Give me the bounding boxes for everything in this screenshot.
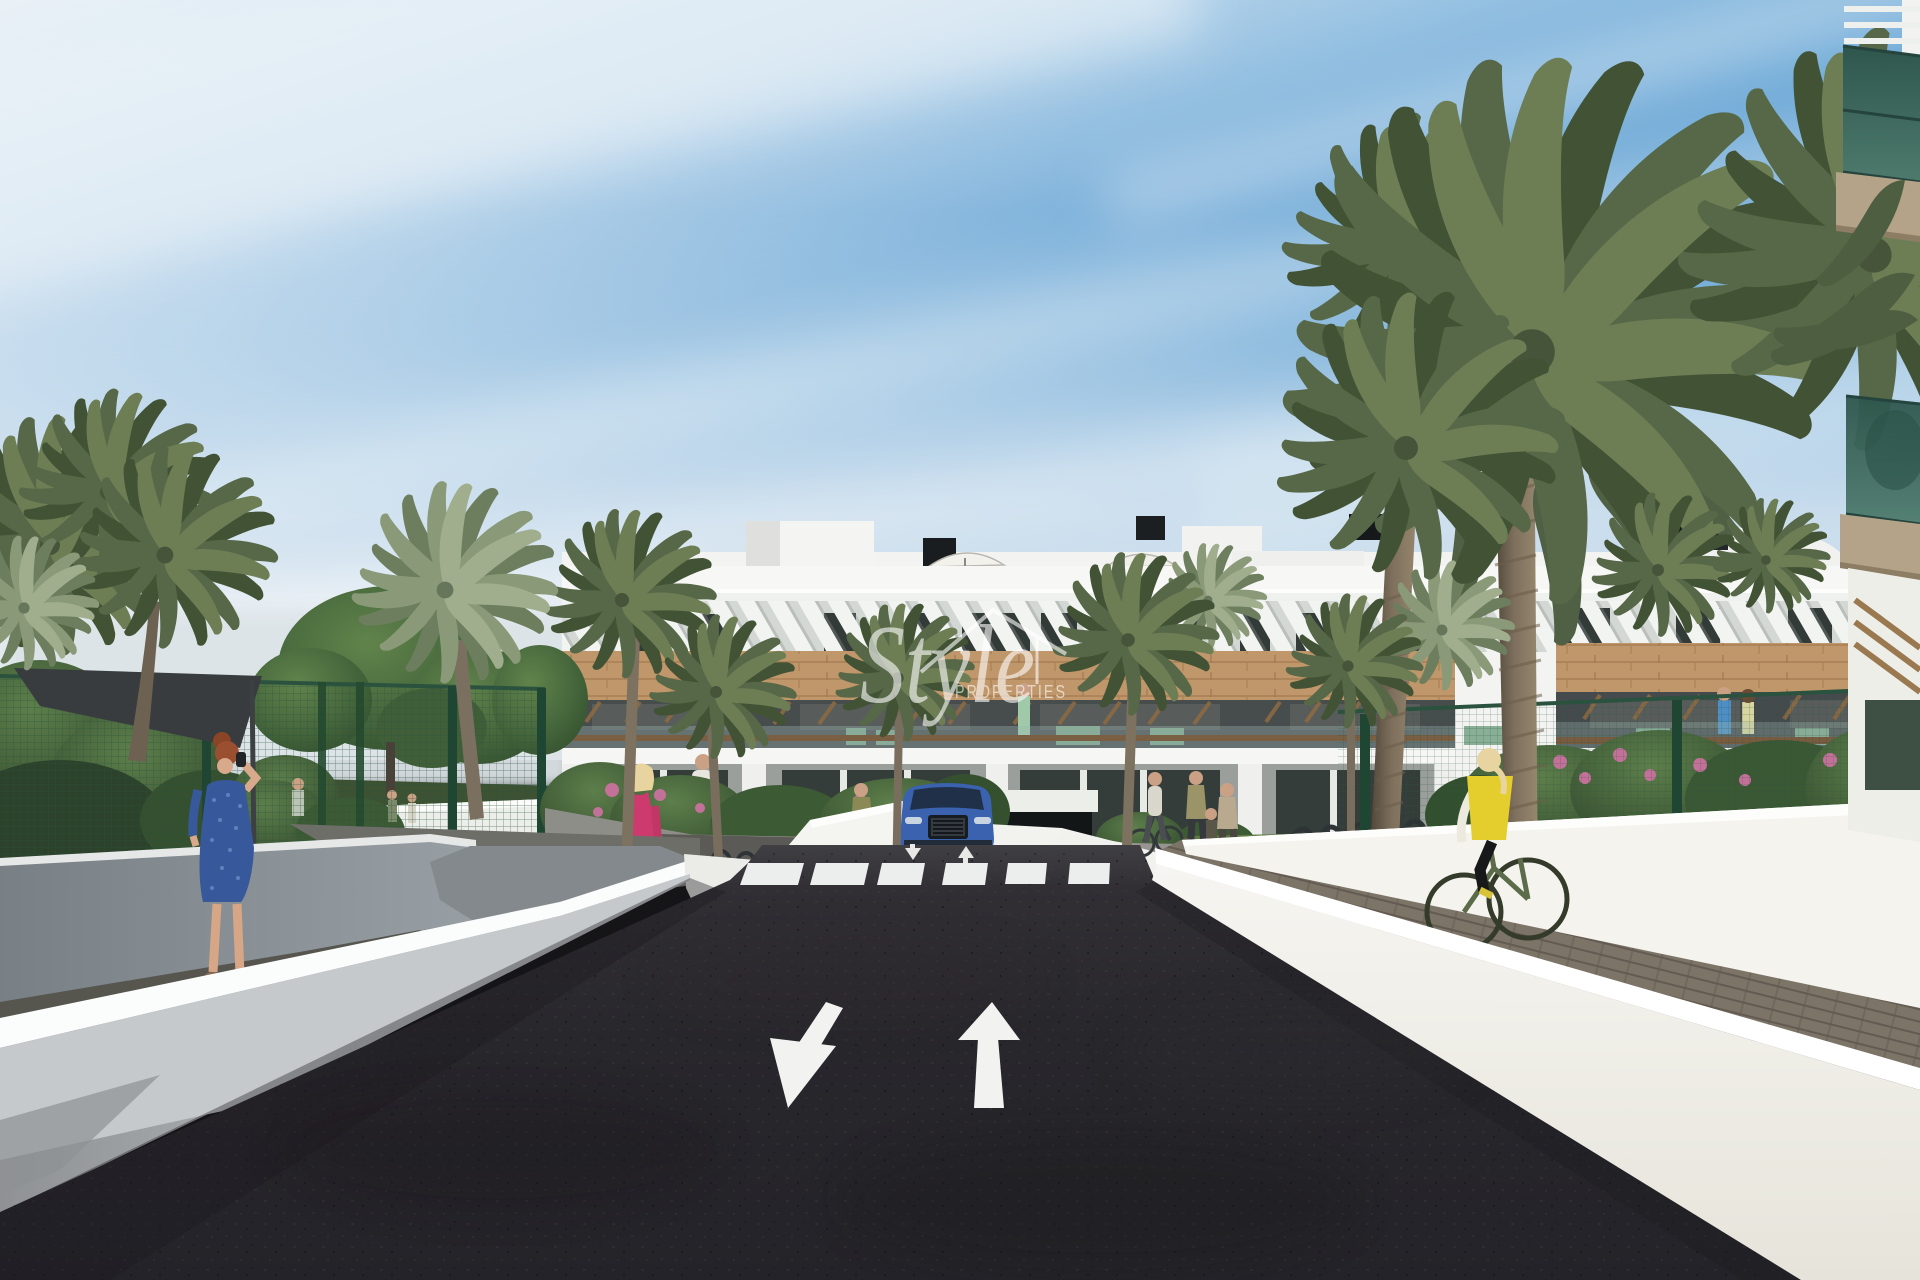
svg-text:PROPERTIES: PROPERTIES — [955, 682, 1067, 702]
